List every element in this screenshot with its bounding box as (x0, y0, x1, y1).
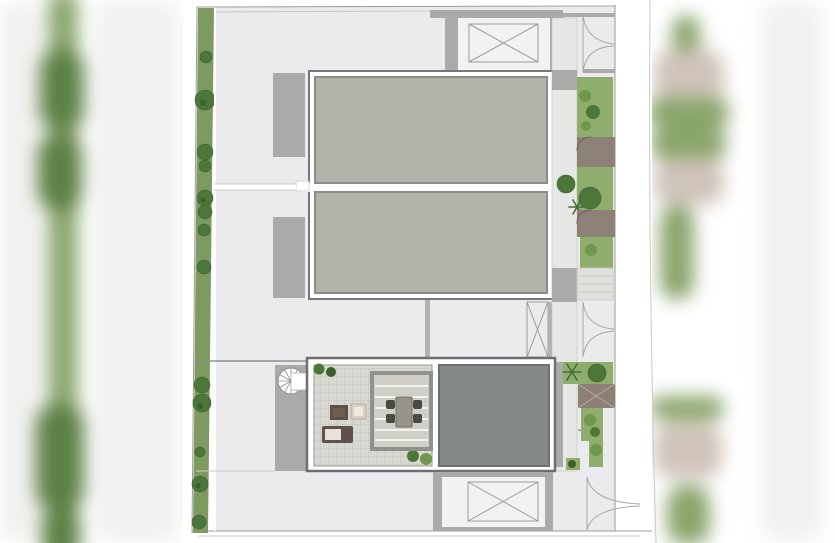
plan-drawing (0, 0, 835, 543)
sofa-cushion (325, 429, 341, 440)
side-wall-upper (273, 73, 305, 157)
entry-porch-b (577, 210, 615, 237)
roof-slab-north (315, 77, 547, 183)
garden-steps (577, 268, 613, 300)
garden-tree (588, 364, 606, 382)
dining-table (396, 397, 412, 427)
planter-shrub (568, 460, 576, 468)
hedge-edge-gap (214, 8, 216, 531)
skylight-shaft-bottom (433, 472, 553, 531)
entry-porch-a (577, 137, 615, 167)
fern-plant (585, 244, 597, 256)
roof-terrace-block (307, 358, 555, 471)
party-wall-tab (296, 181, 309, 191)
roof-slab-south (315, 192, 547, 293)
hip-roof-canopy (578, 384, 615, 408)
party-line-left (214, 184, 296, 190)
dark-roof-slab (439, 365, 549, 466)
side-wall-middle (273, 217, 305, 298)
site-plan-screenshot (0, 0, 835, 543)
party-wall-gap (301, 183, 561, 192)
pergola (372, 373, 431, 449)
mid-band-wall (425, 300, 430, 357)
main-building (296, 71, 561, 299)
garden-bed (580, 237, 613, 268)
